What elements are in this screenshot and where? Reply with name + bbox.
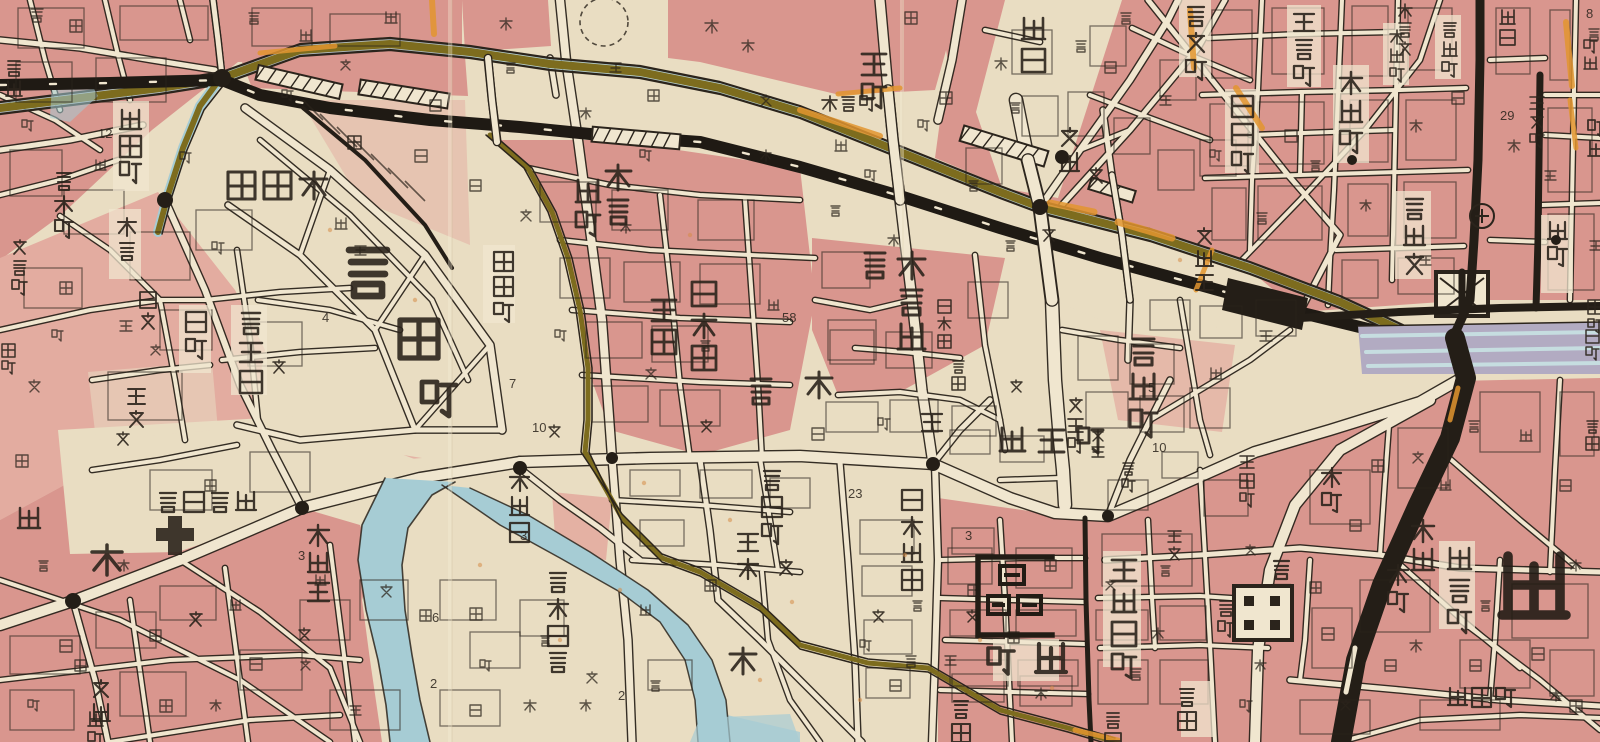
svg-text:29: 29: [1500, 108, 1514, 123]
svg-text:3: 3: [298, 548, 305, 563]
svg-text:10: 10: [532, 420, 546, 435]
svg-text:8: 8: [1586, 6, 1593, 21]
svg-text:3: 3: [965, 528, 972, 543]
svg-text:10: 10: [1152, 440, 1166, 455]
svg-text:58: 58: [782, 310, 796, 325]
svg-text:3: 3: [520, 528, 527, 543]
svg-text:5: 5: [1148, 380, 1155, 395]
svg-text:4: 4: [322, 310, 329, 325]
svg-text:2: 2: [618, 688, 625, 703]
svg-text:7: 7: [509, 376, 516, 391]
svg-text:2: 2: [430, 676, 437, 691]
svg-text:6: 6: [432, 610, 439, 625]
svg-text:12: 12: [98, 126, 112, 141]
svg-text:23: 23: [848, 486, 862, 501]
